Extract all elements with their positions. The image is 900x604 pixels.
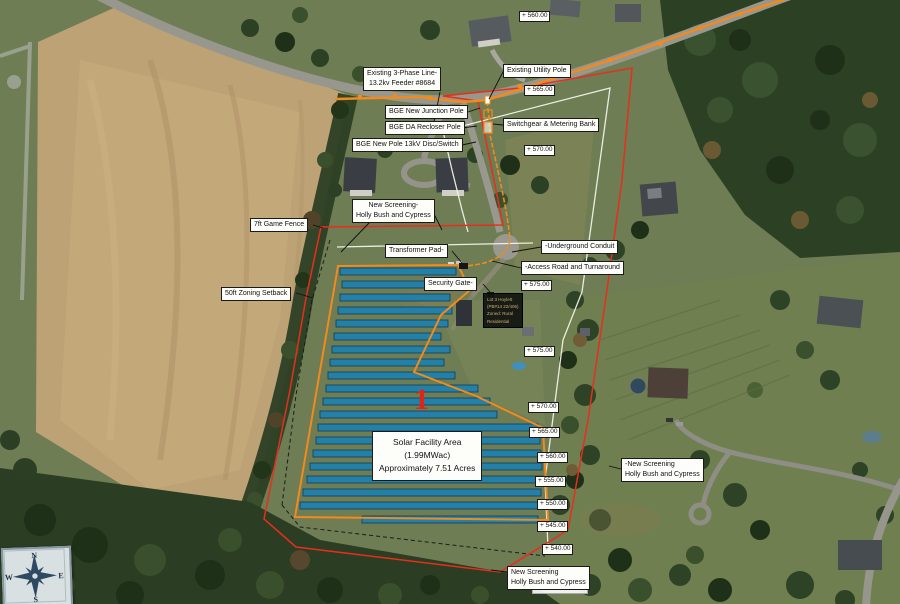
label-line2: (1.99MWac)	[379, 449, 475, 462]
label-underground-conduit: -Underground Conduit	[541, 240, 618, 254]
compass-n: N	[31, 551, 37, 560]
solar-panel-row	[303, 489, 541, 496]
transformer-symbol	[459, 263, 468, 269]
elevation-tag: + 540.00	[542, 544, 573, 555]
label-access-road: -Access Road and Turnaround	[521, 261, 624, 275]
elevation-tag: + 560.00	[519, 11, 550, 22]
label-line2: Holly Bush and Cypress	[625, 470, 700, 480]
elevation-tag: + 565.00	[529, 427, 560, 438]
solar-panel-row	[323, 398, 490, 405]
solar-panel-row	[328, 372, 455, 379]
lot-note-line: Residential	[487, 318, 519, 325]
compass-w: W	[5, 573, 13, 582]
elevation-tag: + 570.00	[528, 402, 559, 413]
label-new-screening-bottom: New Screening Holly Bush and Cypress	[507, 566, 590, 590]
label-line2: Holly Bush and Cypress	[511, 578, 586, 588]
label-existing-3phase-line: Existing 3-Phase Line- 13.2kv Feeder #86…	[363, 67, 441, 91]
solar-panel-row	[334, 333, 441, 340]
array-number-marker: 1	[414, 385, 429, 415]
label-line1: New Screening	[511, 568, 586, 578]
elevation-tag: + 575.00	[521, 280, 552, 291]
elevation-tag: + 575.00	[524, 346, 555, 357]
solar-panel-row	[318, 424, 538, 431]
solar-panel-row	[320, 411, 497, 418]
label-line1: New Screening-	[356, 201, 431, 211]
lot-note-line: Lot 3 Hoylett	[487, 296, 519, 303]
solar-site-plan: Existing 3-Phase Line- 13.2kv Feeder #86…	[0, 0, 900, 604]
elevation-tag: + 545.00	[537, 521, 568, 532]
label-bge-junction-pole: BGE New Junction Pole	[385, 105, 468, 119]
label-existing-utility-pole: Existing Utility Pole	[503, 64, 571, 78]
compass-rose: N W E S	[1, 546, 73, 604]
label-bge-recloser-pole: BGE DA Recloser Pole	[385, 121, 465, 135]
lot-note-line: Zoned: Rural	[487, 310, 519, 317]
label-zoning-setback: 50ft Zoning Setback	[221, 287, 291, 301]
label-game-fence: 7ft Game Fence	[250, 218, 308, 232]
elevation-tag: + 555.00	[535, 476, 566, 487]
label-solar-facility-area: Solar Facility Area (1.99MWac) Approxima…	[372, 431, 482, 481]
elevation-tag: + 550.00	[537, 499, 568, 510]
solar-panel-row	[330, 359, 444, 366]
metering-bank-symbol	[484, 122, 492, 133]
compass-star: N W E S	[3, 548, 67, 604]
label-switchgear: Switchgear & Metering Bank	[503, 118, 599, 132]
lot-note-box: Lot 3 Hoylett (PB#14 22/406) Zoned: Rura…	[483, 293, 523, 328]
label-new-screening-top: New Screening- Holly Bush and Cypress	[352, 199, 435, 223]
elevation-tag: + 560.00	[537, 452, 568, 463]
label-line2: 13.2kv Feeder #8684	[367, 79, 437, 89]
elevation-tag: + 570.00	[524, 145, 555, 156]
elevation-tag: + 565.00	[524, 85, 555, 96]
solar-panel-row	[340, 294, 450, 301]
label-line1: Solar Facility Area	[379, 436, 475, 449]
label-transformer-pad: Transformer Pad-	[385, 244, 448, 258]
label-security-gate: Security Gate-	[424, 277, 477, 291]
label-bge-new-pole: BGE New Pole 13kV Disc/Switch	[352, 138, 463, 152]
label-line1: Existing 3-Phase Line-	[367, 69, 437, 79]
label-line1: -New Screening	[625, 460, 700, 470]
label-line2: Holly Bush and Cypress	[356, 211, 431, 221]
plan-overlay	[0, 0, 900, 604]
label-new-screening-right: -New Screening Holly Bush and Cypress	[621, 458, 704, 482]
label-line3: Approximately 7.51 Acres	[379, 462, 475, 475]
solar-panel-row	[332, 346, 450, 353]
solar-panel-row	[336, 320, 448, 327]
utility-pole-symbol	[485, 96, 490, 104]
solar-panel-row	[338, 307, 452, 314]
solar-panel-row	[300, 502, 540, 509]
lot-note-line: (PB#14 22/406)	[487, 303, 519, 310]
compass-e: E	[58, 571, 64, 580]
solar-panel-row	[340, 268, 456, 275]
compass-s: S	[33, 595, 38, 604]
